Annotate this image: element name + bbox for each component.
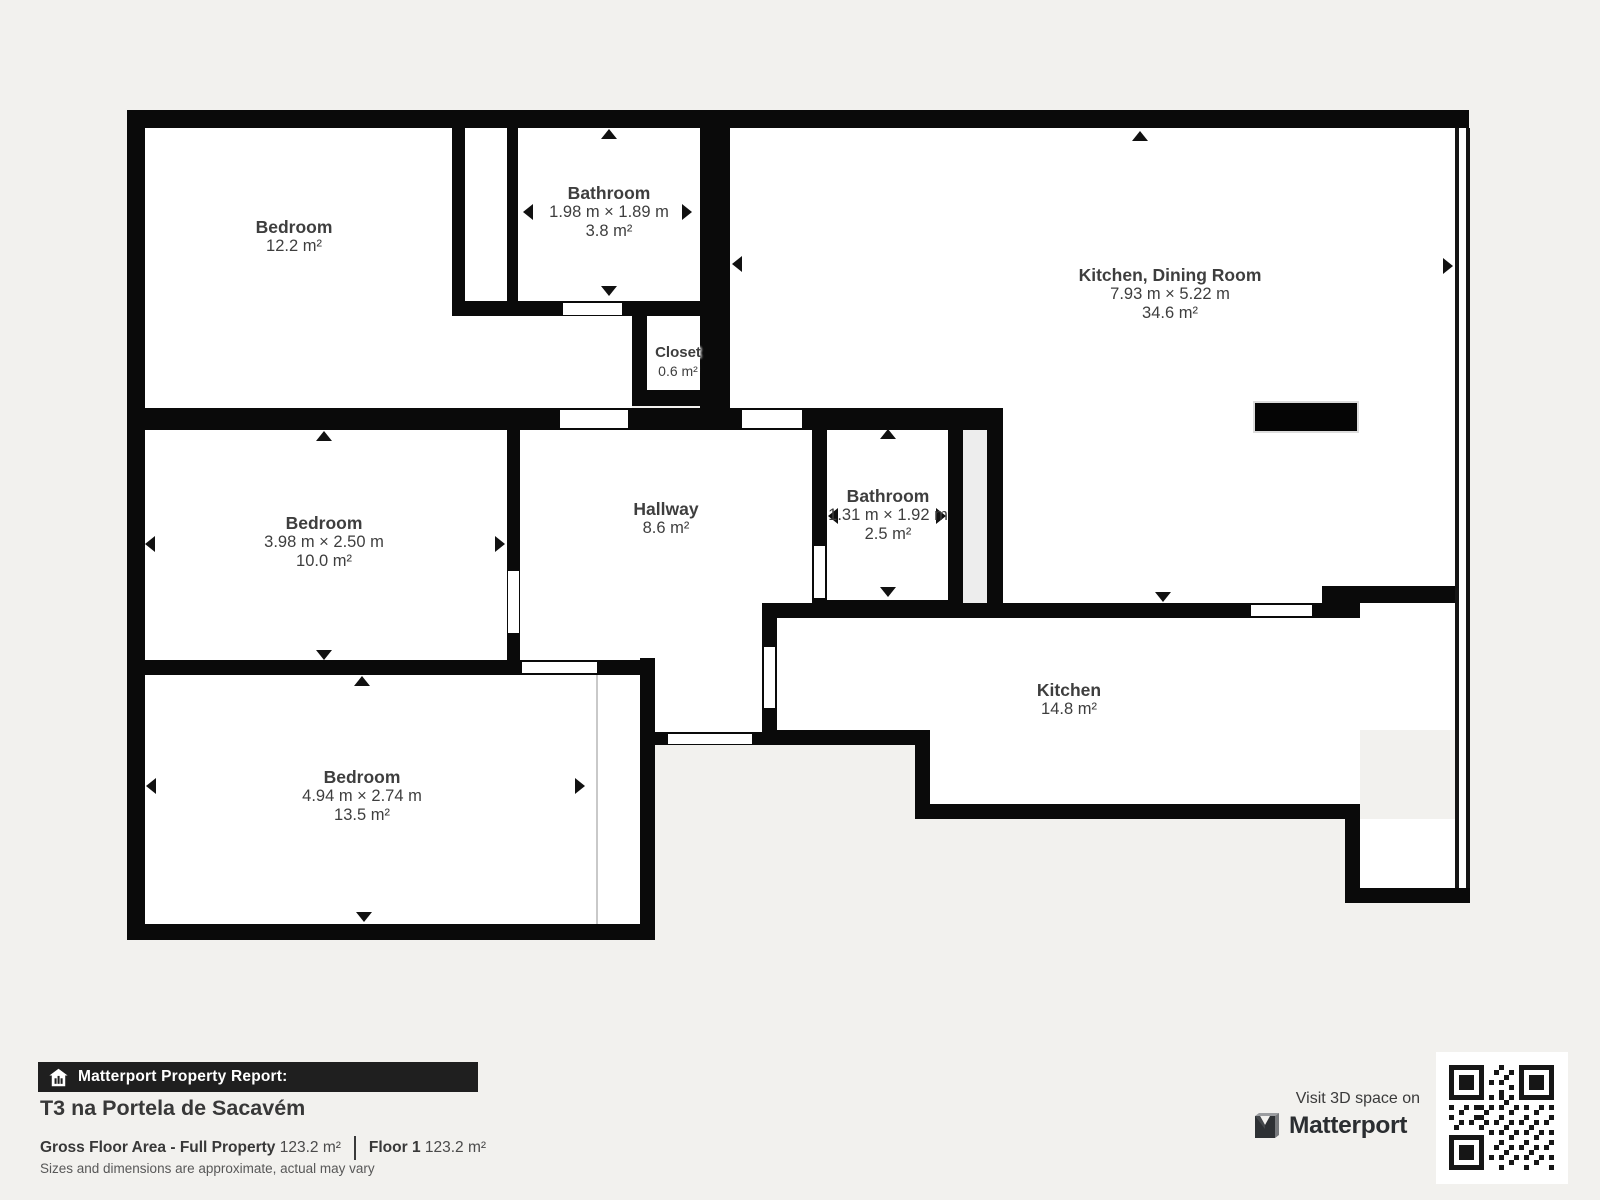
measure-arrow-left-icon <box>523 204 533 220</box>
wall <box>127 924 655 940</box>
room-label-closet: Closet 0.6 m² <box>655 344 701 380</box>
house-chart-icon <box>49 1068 68 1087</box>
measure-arrow-up-icon <box>880 429 896 439</box>
area-divider-line <box>596 675 598 924</box>
room-label-kitchen-dining: Kitchen, Dining Room 7.93 m × 5.22 m 34.… <box>1079 266 1262 323</box>
floor-label: Floor 1 <box>369 1139 421 1157</box>
measure-arrow-down-icon <box>601 286 617 296</box>
qr-code <box>1436 1052 1568 1184</box>
room-floor-bedroom-top-left <box>145 128 452 408</box>
measure-arrow-down-icon <box>1155 592 1171 602</box>
room-label-bedroom-middle: Bedroom 3.98 m × 2.50 m 10.0 m² <box>264 514 384 571</box>
separator <box>354 1136 356 1160</box>
floor-value: 123.2 m² <box>425 1139 486 1157</box>
shaft <box>963 423 987 603</box>
room-floor-kitchen <box>762 618 1455 730</box>
measure-arrow-down-icon <box>356 912 372 922</box>
wall <box>127 110 1469 128</box>
measure-arrow-up-icon <box>1132 131 1148 141</box>
measure-arrow-left-icon <box>732 256 742 272</box>
report-title-bar: Matterport Property Report: <box>38 1062 478 1092</box>
window-glass <box>1459 128 1466 888</box>
report-title: Matterport Property Report: <box>78 1068 288 1086</box>
wall <box>127 110 145 940</box>
door-opening-bathroom-top <box>563 303 622 315</box>
door-opening-bedroom-middle <box>508 571 519 633</box>
room-floor-kitchen-lower <box>930 730 1360 804</box>
room-label-hallway: Hallway 8.6 m² <box>633 500 698 538</box>
door-opening-entrance <box>668 734 752 744</box>
measure-arrow-right-icon <box>1443 258 1453 274</box>
room-label-bedroom-bottom: Bedroom 4.94 m × 2.74 m 13.5 m² <box>302 768 422 825</box>
visit-3d-label: Visit 3D space on <box>1254 1090 1420 1108</box>
matterport-brand: Matterport <box>1252 1112 1432 1140</box>
room-floor-duct <box>465 128 507 301</box>
gfa-label: Gross Floor Area - Full Property <box>40 1139 275 1157</box>
wall <box>632 390 700 406</box>
gfa-value: 123.2 m² <box>280 1139 341 1157</box>
measure-arrow-up-icon <box>601 129 617 139</box>
wall <box>700 110 730 430</box>
window-frame-line <box>1466 128 1470 888</box>
door-opening-bathroom-middle <box>814 546 825 598</box>
room-label-bathroom-middle: Bathroom 1.31 m × 1.92 m 2.5 m² <box>828 487 948 544</box>
wall <box>775 603 1322 618</box>
measure-arrow-left-icon <box>146 778 156 794</box>
wall <box>915 804 1360 819</box>
wall <box>948 428 963 618</box>
room-floor-bedroom-top-left-nook <box>452 316 632 408</box>
room-label-bedroom-top-left: Bedroom 12.2 m² <box>256 218 333 256</box>
measure-arrow-up-icon <box>316 431 332 441</box>
door-opening-kitchen <box>764 647 775 708</box>
room-floor-kitchen-right-arm <box>1345 819 1455 888</box>
measure-arrow-down-icon <box>880 587 896 597</box>
wall <box>640 658 655 940</box>
wall <box>507 110 518 316</box>
room-label-bathroom-top: Bathroom 1.98 m × 1.89 m 3.8 m² <box>549 184 669 241</box>
door-opening-kitchen-dining <box>742 410 802 428</box>
room-label-kitchen: Kitchen 14.8 m² <box>1037 681 1101 719</box>
wall <box>1345 888 1470 903</box>
room-floor-kitchen-upper-right <box>1360 603 1455 618</box>
property-title: T3 na Portela de Sacavém <box>40 1096 305 1121</box>
kitchen-counter <box>1253 401 1359 433</box>
matterport-logo-icon <box>1252 1112 1282 1140</box>
measure-arrow-right-icon <box>495 536 505 552</box>
door-opening-bedroom-bottom <box>522 662 597 673</box>
wall <box>987 408 1003 618</box>
door-opening-kitchen-lower <box>1251 605 1312 616</box>
wall <box>1322 586 1360 618</box>
door-opening-bedroom-top-left <box>560 410 628 428</box>
wall <box>1360 586 1470 603</box>
measure-arrow-right-icon <box>575 778 585 794</box>
room-floor-hallway-corridor <box>655 658 762 732</box>
measure-arrow-down-icon <box>316 650 332 660</box>
wall <box>452 110 465 316</box>
floor-area-info: Gross Floor Area - Full Property 123.2 m… <box>40 1136 486 1160</box>
disclaimer-text: Sizes and dimensions are approximate, ac… <box>40 1161 375 1176</box>
measure-arrow-right-icon <box>682 204 692 220</box>
floor-plan: Bedroom 12.2 m² Bathroom 1.98 m × 1.89 m… <box>0 0 1600 1200</box>
wall <box>775 730 930 745</box>
measure-arrow-left-icon <box>145 536 155 552</box>
measure-arrow-up-icon <box>354 676 370 686</box>
matterport-wordmark: Matterport <box>1289 1112 1407 1140</box>
